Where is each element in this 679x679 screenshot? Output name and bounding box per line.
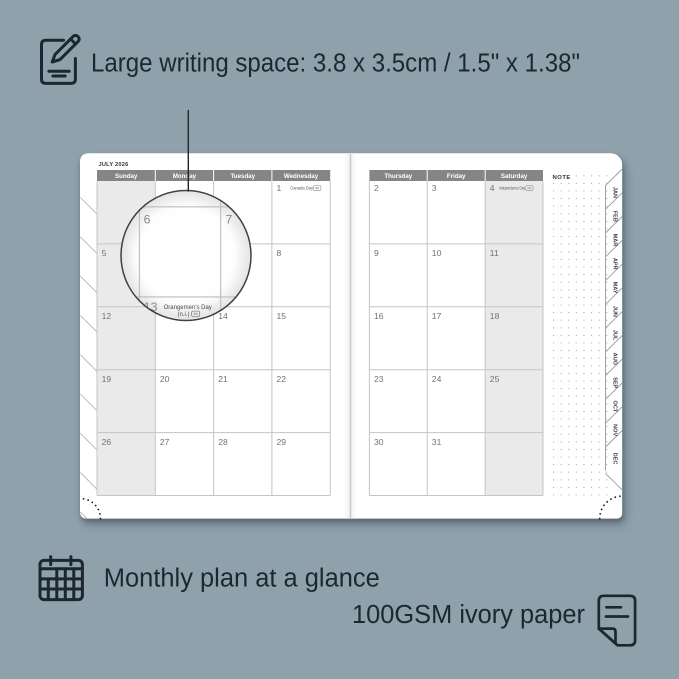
svg-text:NOV: NOV (612, 424, 618, 436)
svg-text:3: 3 (432, 183, 437, 193)
svg-text:14: 14 (218, 311, 228, 321)
svg-text:7: 7 (226, 212, 233, 226)
svg-text:Thursday: Thursday (384, 173, 412, 180)
svg-text:8: 8 (277, 248, 282, 258)
svg-text:18: 18 (490, 311, 500, 321)
svg-text:MAR: MAR (612, 234, 618, 247)
svg-text:SEP: SEP (612, 377, 618, 388)
svg-text:21: 21 (218, 374, 228, 384)
svg-text:1: 1 (277, 183, 282, 193)
svg-text:FEB: FEB (612, 211, 618, 222)
svg-text:11: 11 (490, 248, 499, 258)
svg-text:Monday: Monday (173, 173, 197, 180)
svg-text:100GSM ivory paper: 100GSM ivory paper (352, 601, 586, 629)
svg-text:9: 9 (374, 248, 379, 258)
svg-text:Independence Day: Independence Day (499, 186, 526, 191)
svg-text:29: 29 (277, 437, 287, 447)
svg-text:JUN: JUN (612, 306, 618, 317)
svg-text:Friday: Friday (447, 173, 466, 180)
svg-text:2: 2 (374, 183, 379, 193)
svg-text:30: 30 (374, 437, 384, 447)
svg-text:31: 31 (432, 437, 442, 447)
svg-text:Canada Day: Canada Day (290, 186, 314, 191)
svg-text:17: 17 (432, 311, 442, 321)
svg-text:28: 28 (218, 437, 228, 447)
svg-text:15: 15 (277, 311, 287, 321)
svg-text:4: 4 (490, 183, 495, 193)
svg-text:26: 26 (102, 437, 112, 447)
svg-text:12: 12 (102, 311, 112, 321)
svg-text:AUG: AUG (612, 353, 618, 365)
svg-text:Large writing space: 3.8 x 3.5: Large writing space: 3.8 x 3.5cm / 1.5" … (91, 50, 580, 78)
svg-text:25: 25 (490, 374, 500, 384)
svg-text:NOTE: NOTE (553, 175, 571, 181)
svg-text:24: 24 (432, 374, 442, 384)
svg-text:Wednesday: Wednesday (284, 173, 319, 180)
svg-text:Sunday: Sunday (115, 173, 138, 180)
svg-text:6: 6 (144, 212, 151, 226)
svg-text:APR: APR (612, 258, 618, 270)
svg-text:JULY 2026: JULY 2026 (99, 162, 129, 168)
svg-text:OCT: OCT (612, 400, 618, 412)
svg-text:MAY: MAY (612, 282, 618, 294)
svg-text:JAN: JAN (612, 187, 618, 198)
svg-text:19: 19 (102, 374, 112, 384)
svg-text:Saturday: Saturday (501, 173, 528, 180)
svg-text:JUL: JUL (612, 330, 618, 341)
svg-text:20: 20 (160, 374, 170, 384)
svg-text:10: 10 (432, 248, 442, 258)
svg-text:Tuesday: Tuesday (230, 173, 255, 180)
svg-text:5: 5 (102, 248, 107, 258)
svg-text:23: 23 (374, 374, 384, 384)
svg-text:DEC: DEC (612, 453, 618, 465)
svg-text:Monthly plan at a glance: Monthly plan at a glance (104, 565, 380, 593)
svg-text:(n.i.): (n.i.) (178, 312, 190, 318)
svg-text:16: 16 (374, 311, 384, 321)
svg-text:Orangemen’s Day: Orangemen’s Day (164, 305, 212, 311)
svg-text:27: 27 (160, 437, 170, 447)
svg-text:22: 22 (277, 374, 287, 384)
